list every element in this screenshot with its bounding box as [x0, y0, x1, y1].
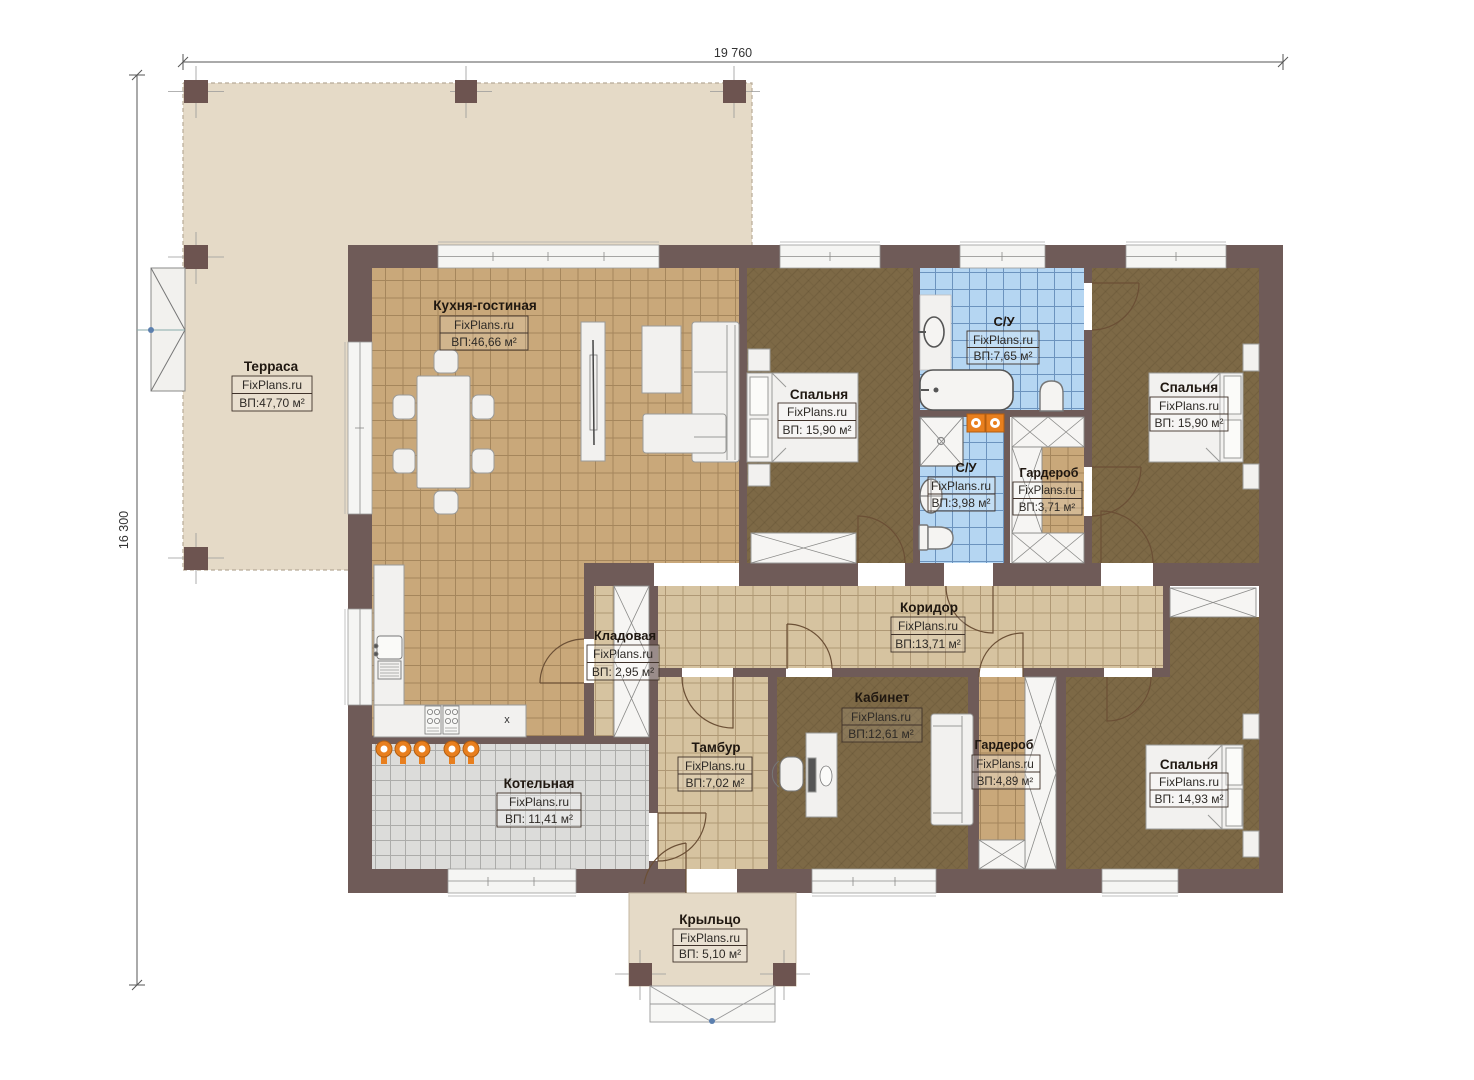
svg-text:ВП: 14,93 м²: ВП: 14,93 м² — [1155, 792, 1224, 806]
svg-text:19 760: 19 760 — [714, 46, 752, 60]
svg-text:ВП:3,71 м²: ВП:3,71 м² — [1019, 502, 1076, 514]
svg-text:Спальня: Спальня — [790, 387, 848, 402]
svg-text:FixPlans.ru: FixPlans.ru — [851, 710, 911, 724]
svg-text:Тамбур: Тамбур — [692, 740, 741, 755]
svg-text:FixPlans.ru: FixPlans.ru — [787, 405, 847, 419]
svg-text:Кладовая: Кладовая — [594, 628, 656, 643]
svg-text:ВП:13,71 м²: ВП:13,71 м² — [895, 637, 961, 651]
svg-text:ВП:4,89 м²: ВП:4,89 м² — [977, 776, 1034, 788]
svg-text:FixPlans.ru: FixPlans.ru — [931, 479, 991, 493]
svg-text:ВП: 11,41 м²: ВП: 11,41 м² — [505, 812, 573, 826]
svg-text:Котельная: Котельная — [504, 776, 575, 791]
svg-text:FixPlans.ru: FixPlans.ru — [1159, 775, 1219, 789]
svg-text:С/У: С/У — [955, 460, 977, 475]
svg-text:х: х — [504, 714, 510, 726]
svg-text:FixPlans.ru: FixPlans.ru — [509, 795, 569, 809]
svg-text:FixPlans.ru: FixPlans.ru — [1018, 485, 1076, 497]
svg-text:Гардероб: Гардероб — [1019, 466, 1078, 480]
svg-text:ВП: 15,90 м²: ВП: 15,90 м² — [1155, 416, 1224, 430]
svg-text:ВП:3,98 м²: ВП:3,98 м² — [932, 496, 991, 510]
svg-text:ВП:7,02 м²: ВП:7,02 м² — [686, 776, 745, 790]
svg-text:Кухня-гостиная: Кухня-гостиная — [433, 298, 536, 313]
svg-text:FixPlans.ru: FixPlans.ru — [973, 333, 1033, 347]
svg-text:Кабинет: Кабинет — [855, 690, 910, 705]
svg-text:Крыльцо: Крыльцо — [679, 912, 740, 927]
svg-text:FixPlans.ru: FixPlans.ru — [1159, 399, 1219, 413]
svg-text:С/У: С/У — [993, 314, 1015, 329]
svg-text:ВП:46,66 м²: ВП:46,66 м² — [451, 335, 517, 349]
svg-text:FixPlans.ru: FixPlans.ru — [242, 378, 302, 392]
svg-text:FixPlans.ru: FixPlans.ru — [898, 619, 958, 633]
svg-text:FixPlans.ru: FixPlans.ru — [454, 318, 514, 332]
svg-text:ВП: 5,10 м²: ВП: 5,10 м² — [679, 947, 741, 961]
svg-text:ВП: 15,90 м²: ВП: 15,90 м² — [783, 423, 852, 437]
svg-text:Гардероб: Гардероб — [974, 738, 1033, 752]
svg-text:Коридор: Коридор — [900, 600, 958, 615]
svg-text:ВП:7,65 м²: ВП:7,65 м² — [974, 349, 1033, 363]
svg-text:FixPlans.ru: FixPlans.ru — [680, 931, 740, 945]
svg-text:FixPlans.ru: FixPlans.ru — [976, 759, 1034, 771]
svg-text:Терраса: Терраса — [244, 359, 299, 374]
svg-text:ВП: 2,95 м²: ВП: 2,95 м² — [592, 665, 654, 679]
svg-text:ВП:12,61 м²: ВП:12,61 м² — [848, 727, 914, 741]
svg-text:FixPlans.ru: FixPlans.ru — [593, 647, 653, 661]
svg-text:Спальня: Спальня — [1160, 380, 1218, 395]
svg-text:FixPlans.ru: FixPlans.ru — [685, 759, 745, 773]
svg-text:16 300: 16 300 — [117, 511, 131, 549]
svg-text:ВП:47,70 м²: ВП:47,70 м² — [239, 396, 305, 410]
svg-text:Спальня: Спальня — [1160, 757, 1218, 772]
